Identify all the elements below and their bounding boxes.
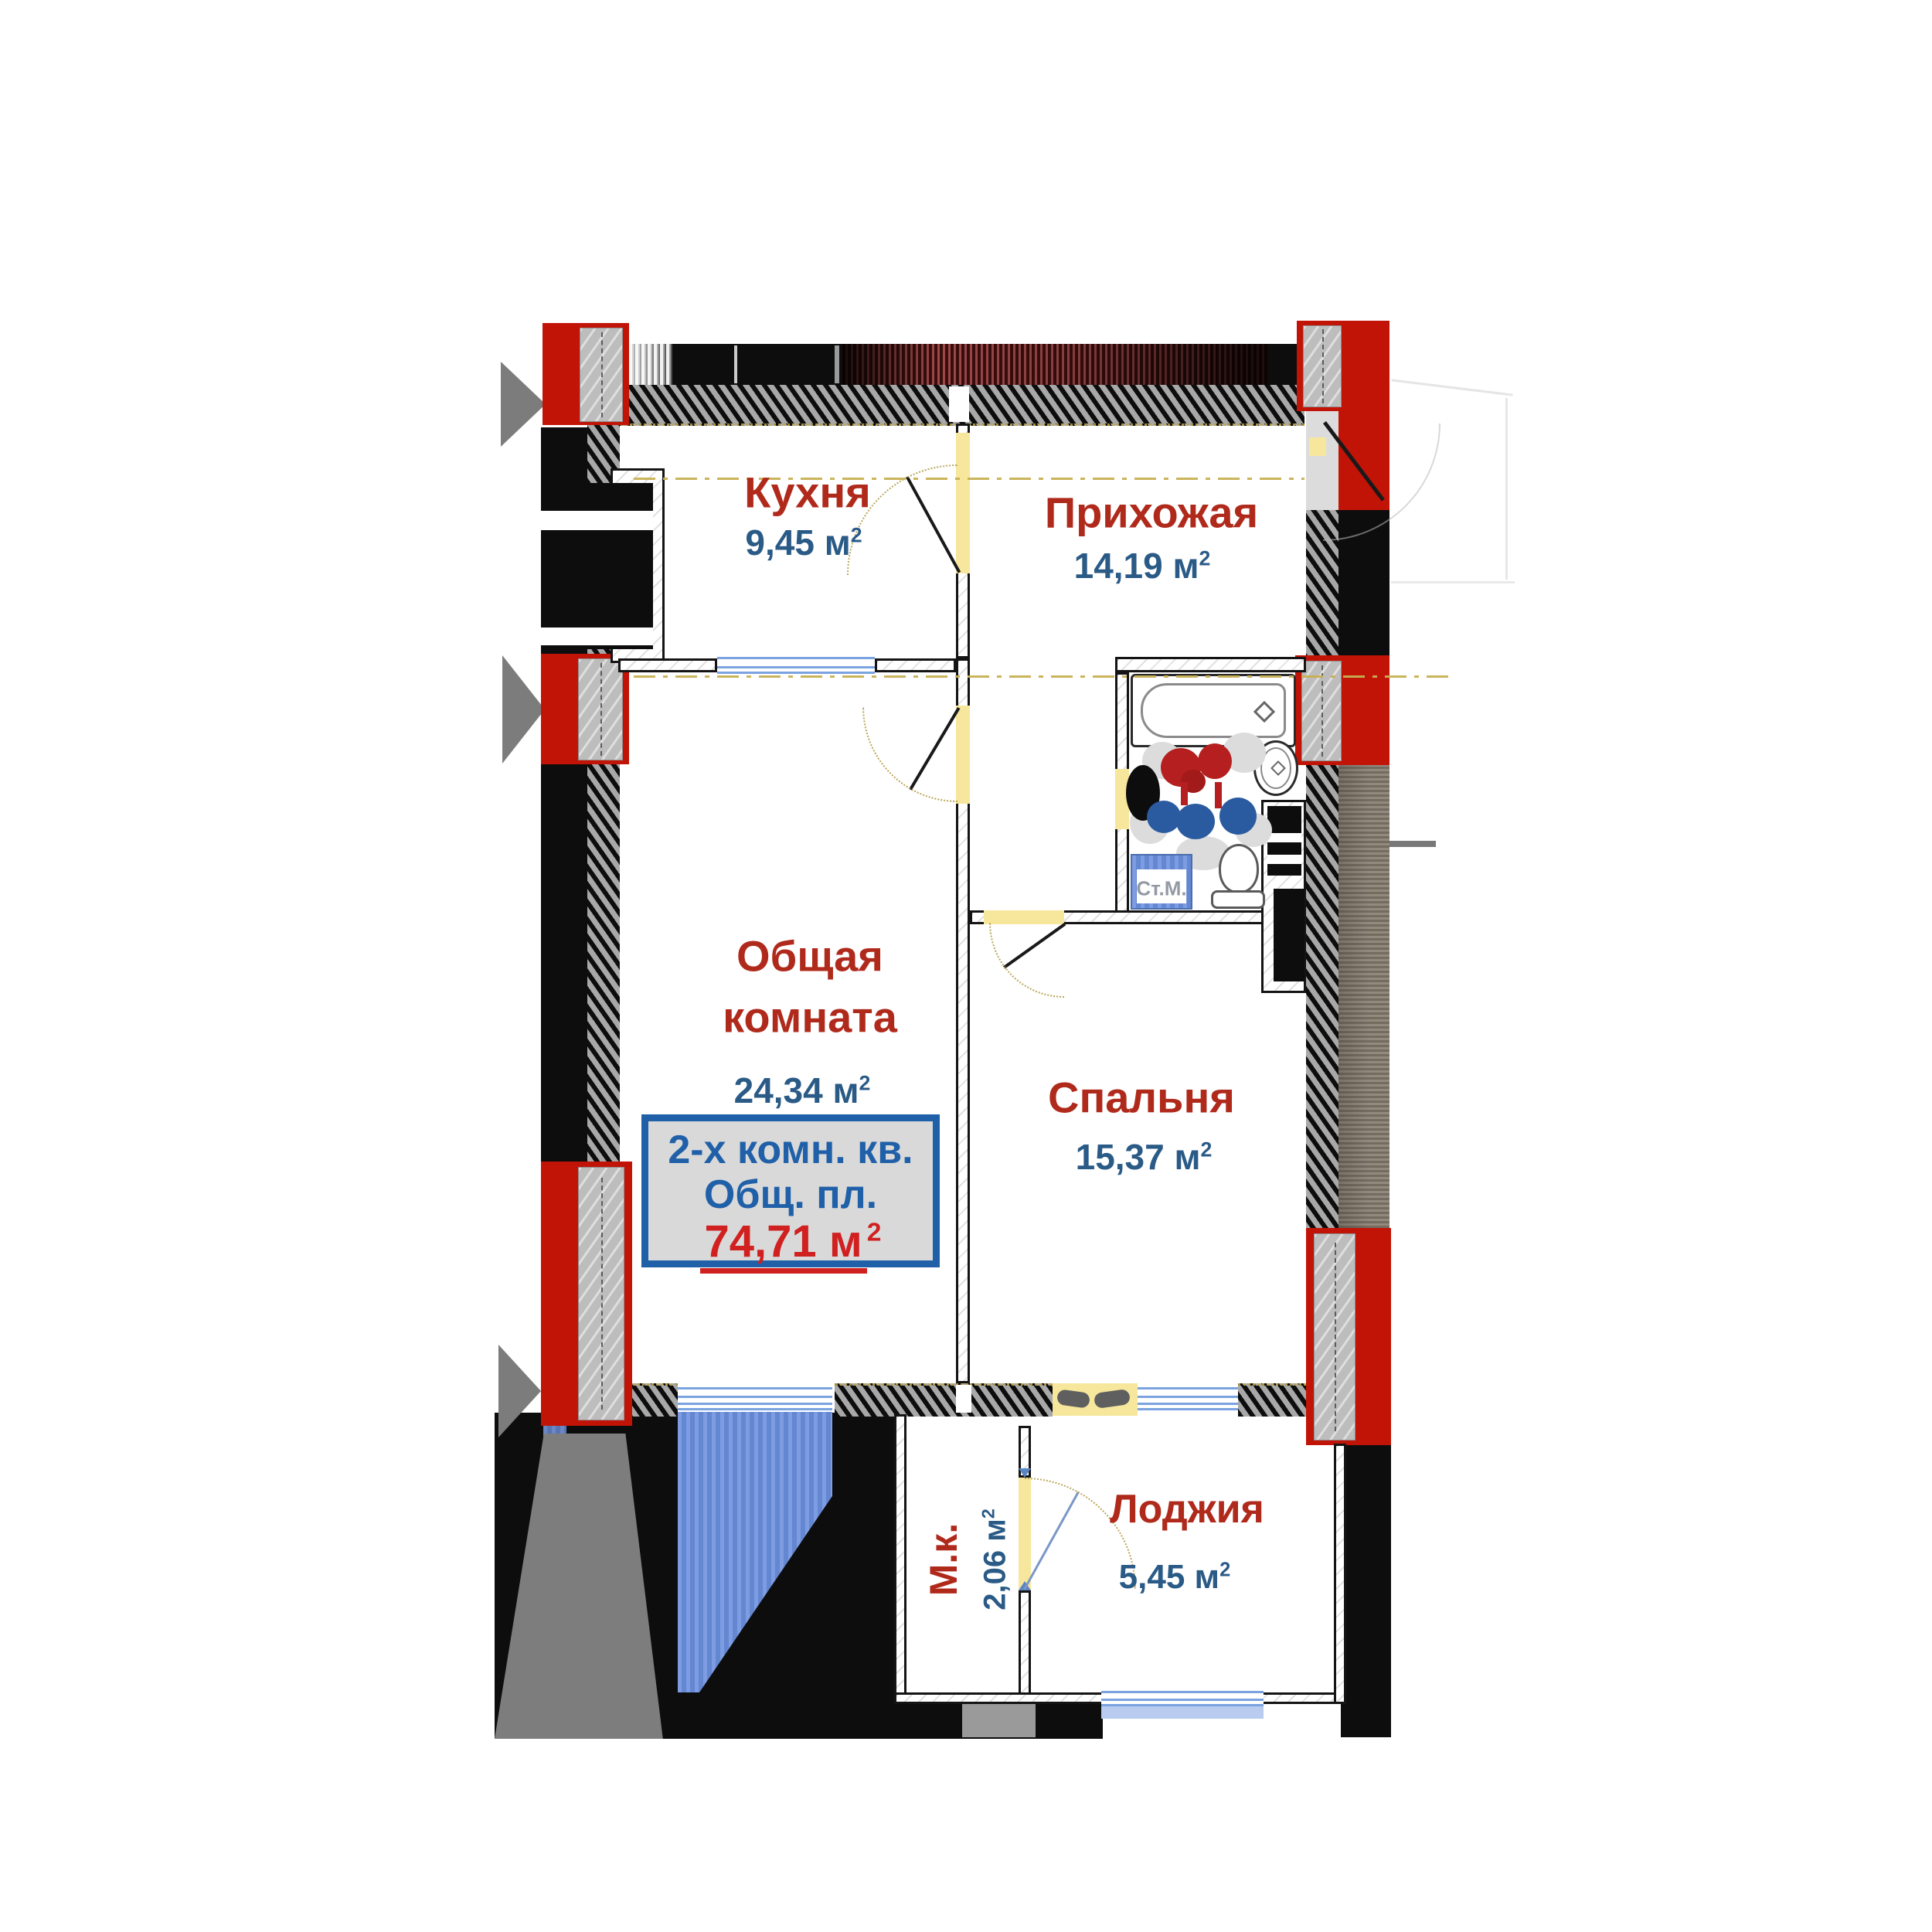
concrete-column [578,658,623,760]
info-box-line1: 2-х комн. кв. [648,1128,933,1172]
axis-line [634,675,1449,678]
area-value: 5,45 [1119,1558,1185,1596]
ventilation-shaft-slot [1267,855,1301,864]
area-value: 14,19 [1074,546,1163,586]
column-axis [1322,329,1324,403]
window-glass-line [717,666,875,668]
window-glass-line [1138,1403,1238,1405]
bathroom-decor-blue [1147,801,1181,833]
washing-machine-label: Ст.М. [1136,877,1186,901]
exterior-mass-left-lower [541,764,589,1162]
adjacent-structure-band [1338,765,1389,1228]
area-sup: 2 [1219,1559,1230,1580]
toilet [1219,844,1259,893]
axis-line [634,478,1304,480]
wall-bottom-segment [1238,1383,1306,1417]
living-room-label-line2: комната [723,992,897,1043]
bathroom-decor-blue [1176,804,1215,839]
window-bedroom [1138,1387,1238,1410]
section-arrow-icon [501,362,546,447]
area-unit: м [978,1519,1012,1542]
toilet-tank [1211,890,1265,909]
door-opening-living [956,706,970,804]
wall-bottom-segment [628,1383,678,1417]
window-loggia [1101,1691,1264,1706]
living-room-area-label: 24,34 м2 [734,1070,871,1111]
section-arrow-icon [498,1345,541,1437]
bathroom-decor-red [1215,782,1222,808]
info-box: 2-х комн. кв. Общ. пл. 74,71 м2 [641,1114,940,1267]
stairwell-ghost-line [1391,379,1512,396]
ventilation-shaft-slot [1267,833,1301,842]
window-kitchen [717,657,875,674]
exterior-mass-bottom-right [1341,1444,1391,1737]
window-glass-line [678,1403,832,1405]
window-glass-line [678,1396,832,1398]
area-value: 2,06 [978,1550,1012,1611]
hallway-area-label: 14,19 м2 [1074,545,1211,587]
bathroom-decor-blue [1219,798,1257,835]
loggia-area-label: 5,45 м2 [1119,1558,1231,1597]
total-area-sup: 2 [867,1219,882,1247]
area-value: 15,37 [1076,1137,1165,1177]
top-band-darkred-stripes [842,344,1267,385]
total-area-value: 74,71 [705,1216,817,1267]
door-opening-kitchen [956,433,970,573]
ventilation-shaft [1274,889,1304,981]
column-axis [1321,665,1323,757]
column-axis [601,1178,603,1410]
bathtub [1131,674,1296,747]
window-loggia-sill [1101,1706,1264,1719]
area-sup: 2 [978,1509,998,1519]
floor-plan: Ст.М. Кухня 9,45 м2 Прихожая 14,19 м2 Об… [0,0,1932,1932]
kitchen-area-label: 9,45 м2 [745,522,862,563]
area-unit: м [1173,546,1199,586]
door-marker-icon [1019,1468,1031,1478]
top-band-white-line [734,345,737,383]
total-area-unit: м [829,1216,862,1267]
column-axis [1335,1243,1336,1432]
wall-bathroom-top [1115,657,1306,672]
area-value: 9,45 [745,522,815,563]
stairwell-ghost-line [1505,398,1508,580]
area-sup: 2 [851,524,862,547]
area-unit: м [1195,1558,1220,1596]
column-axis [600,663,602,756]
kitchen-niche-slot [541,628,653,645]
exterior-stub-gray [962,1704,1036,1737]
wall-loggia-right [1334,1444,1346,1704]
bedroom-label: Спальня [1048,1073,1235,1123]
wall-kitchen-bottom [875,658,956,672]
top-band-gray-line [835,345,839,383]
door-swing-arc [1323,423,1440,541]
area-sup: 2 [859,1072,871,1095]
wall-kitchen-bottom [618,658,717,672]
stairwell-ghost-line [1391,581,1515,583]
concrete-column [580,328,623,422]
column-axis [601,332,603,417]
area-unit: м [833,1070,859,1111]
door-swing-arc [989,923,1064,998]
hallway-label: Прихожая [1045,488,1258,538]
small-room-area-label: 2,06 м2 [978,1509,1012,1610]
loggia-label: Лоджия [1110,1486,1264,1532]
area-unit: м [825,522,851,563]
wall-bottom-segment [835,1383,1053,1417]
bathroom-decor-red [1181,782,1188,805]
wall-junction [949,386,969,422]
concrete-column [1303,325,1342,407]
area-sup: 2 [1201,1138,1213,1162]
area-sup: 2 [1199,547,1211,570]
adjacent-structure-line [1389,841,1436,847]
window-living [678,1387,832,1410]
bedroom-area-label: 15,37 м2 [1076,1136,1213,1178]
window-glass-line [1138,1396,1238,1398]
kitchen-niche-duct [541,483,653,649]
wall-smallroom-loggia [1019,1590,1031,1704]
concrete-column [578,1167,624,1420]
area-unit: м [1175,1137,1201,1177]
small-room-label: М.к. [921,1523,966,1596]
top-band-black [672,344,842,385]
section-arrow-icon [502,655,545,764]
living-room-label-line1: Общая [736,931,883,981]
window-glass-line [1101,1699,1264,1701]
kitchen-niche-slot [541,511,653,530]
door-swing-arc [862,707,957,802]
area-value: 24,34 [734,1070,823,1111]
wall-loggia-left [894,1414,906,1704]
wall-junction [956,1385,971,1413]
info-box-line2: Общ. пл. [648,1172,933,1217]
concrete-column [1314,1233,1355,1440]
info-box-total-area: 74,71 м2 [648,1217,933,1267]
kitchen-label: Кухня [744,468,871,518]
